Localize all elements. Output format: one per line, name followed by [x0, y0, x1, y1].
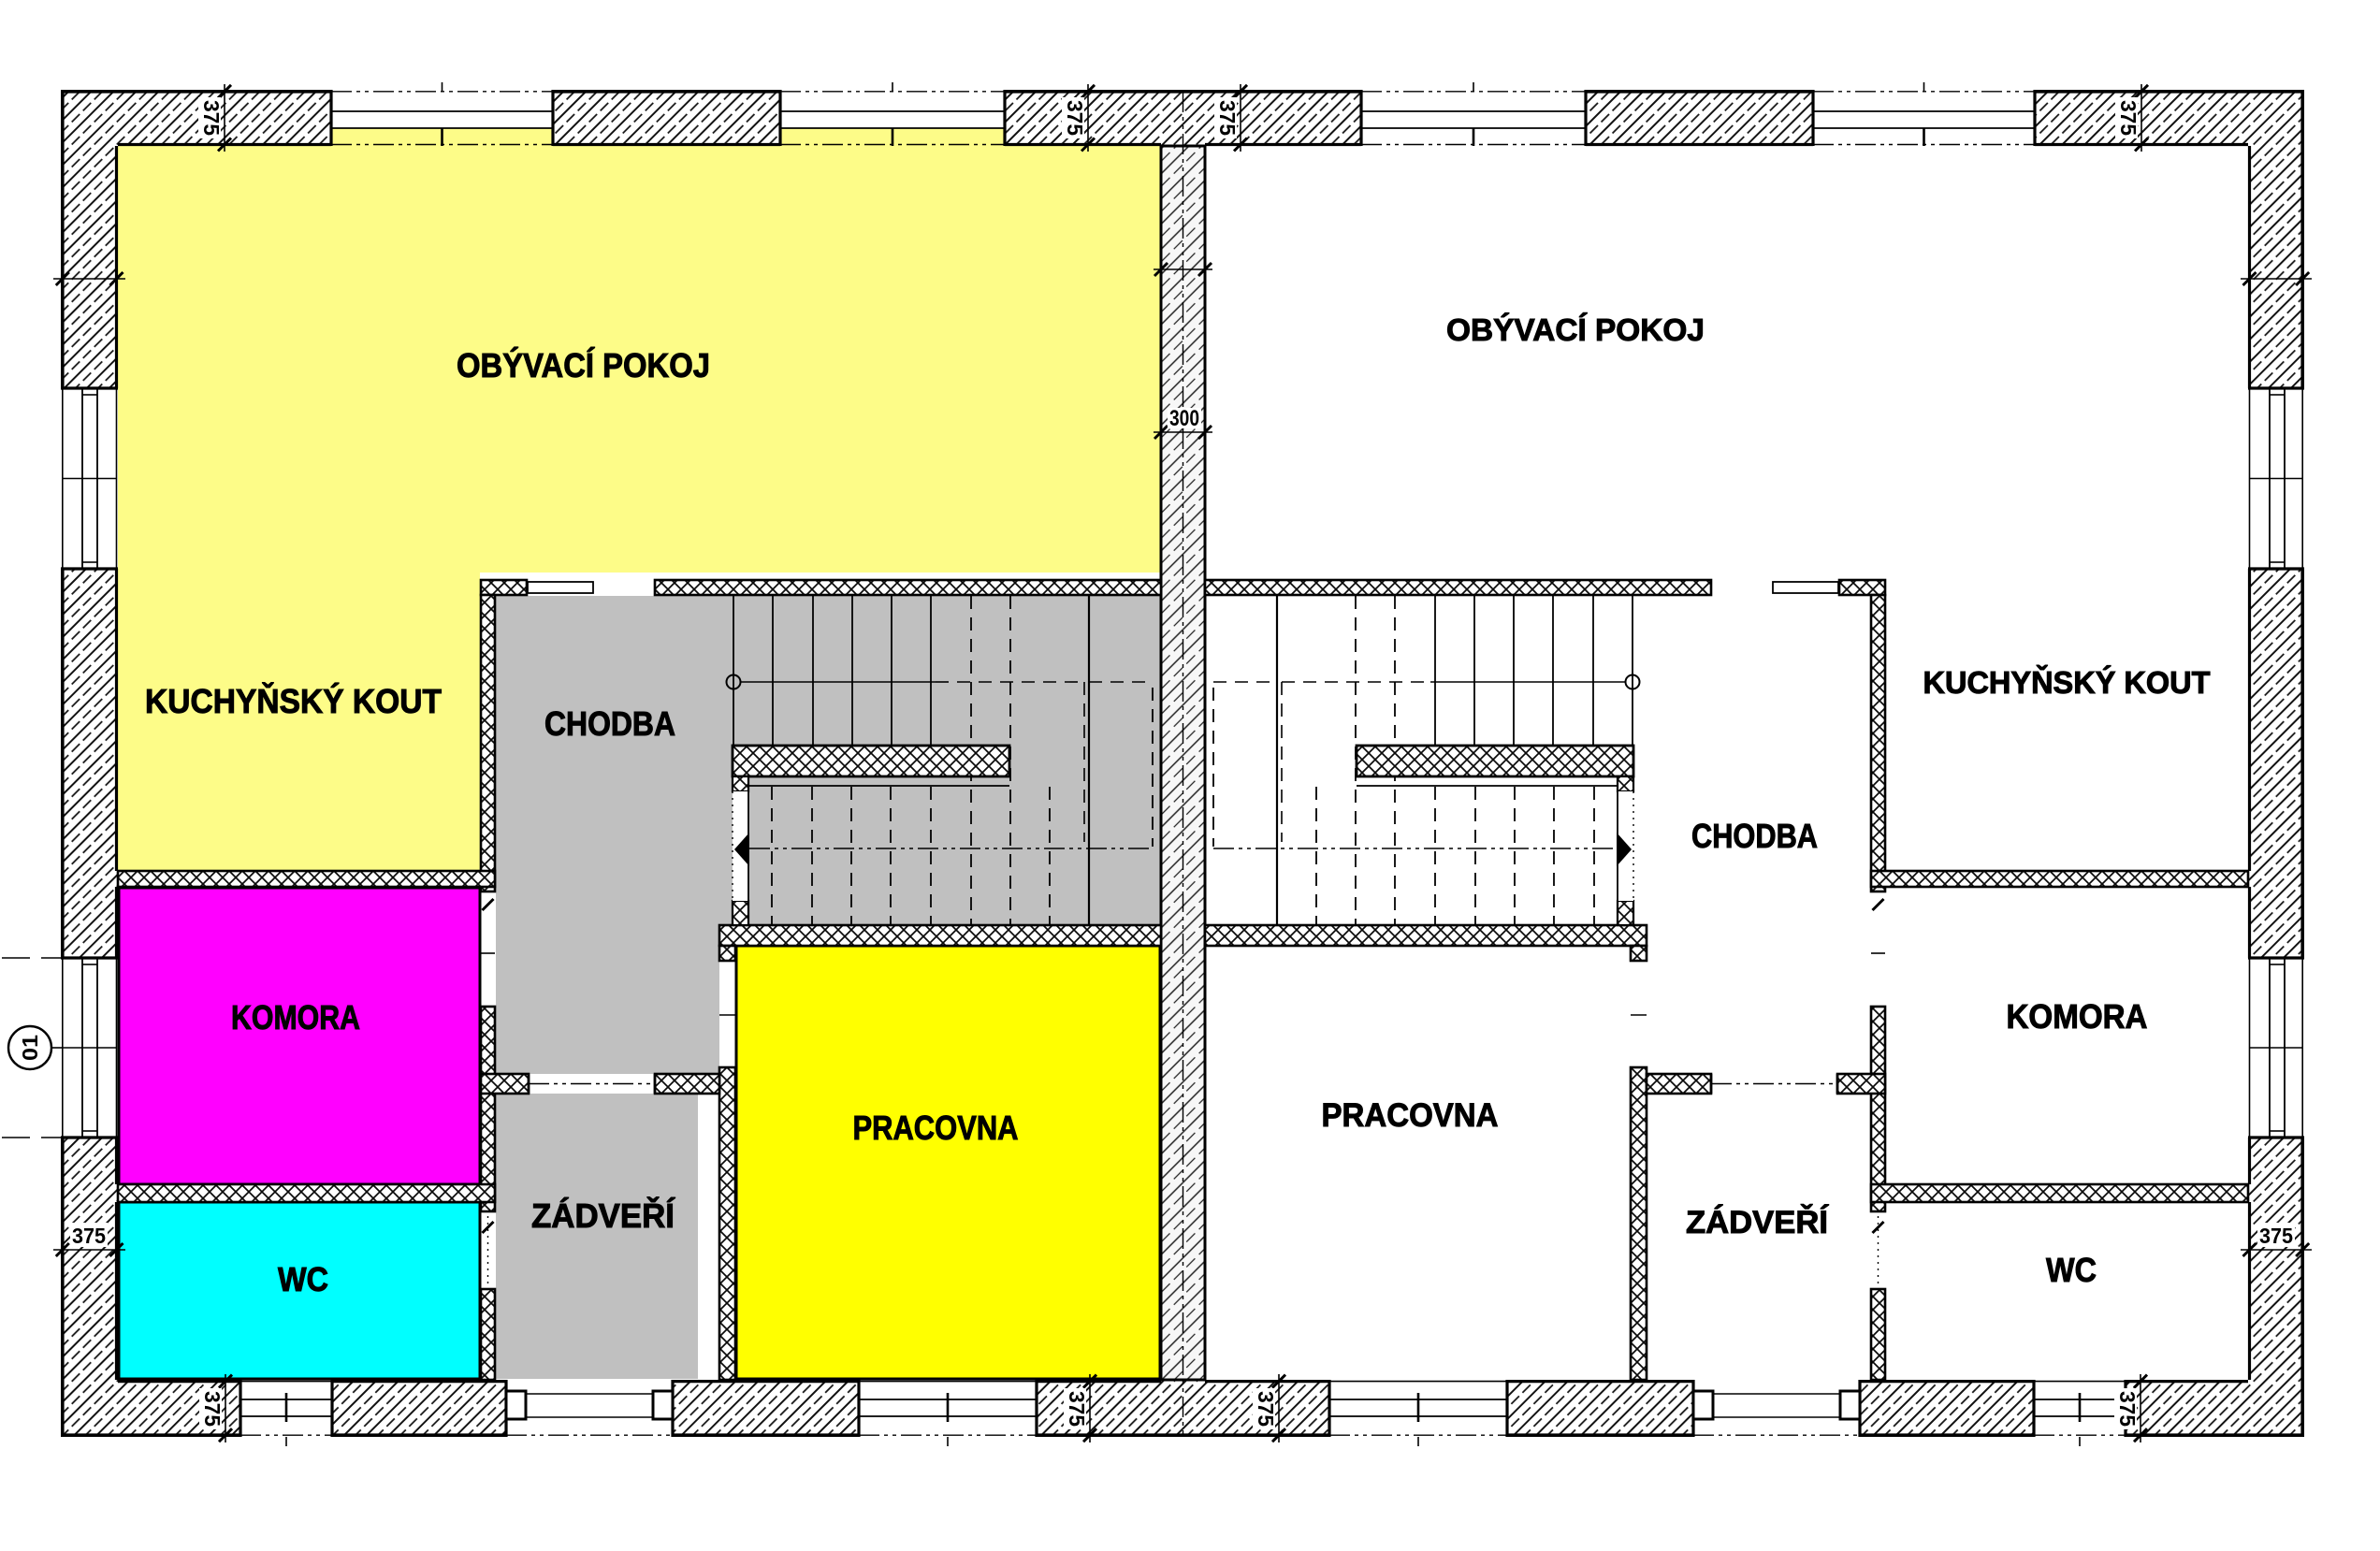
svg-text:KOMORA: KOMORA [2007, 997, 2148, 1036]
svg-text:375: 375 [1063, 100, 1087, 136]
svg-text:375: 375 [199, 100, 224, 136]
svg-text:375: 375 [1215, 100, 1240, 136]
svg-text:375: 375 [2116, 100, 2141, 136]
svg-text:375: 375 [2259, 1224, 2293, 1248]
svg-text:PRACOVNA: PRACOVNA [1322, 1097, 1499, 1134]
svg-text:WC: WC [2046, 1251, 2097, 1289]
svg-text:OBÝVACÍ POKOJ: OBÝVACÍ POKOJ [457, 346, 710, 384]
svg-text:375: 375 [1254, 1391, 1278, 1427]
svg-text:01: 01 [18, 1035, 42, 1061]
svg-text:OBÝVACÍ POKOJ: OBÝVACÍ POKOJ [1446, 312, 1705, 347]
svg-text:KUCHYŇSKÝ KOUT: KUCHYŇSKÝ KOUT [1923, 665, 2211, 700]
svg-text:KUCHYŇSKÝ KOUT: KUCHYŇSKÝ KOUT [145, 681, 442, 720]
svg-text:CHODBA: CHODBA [544, 704, 675, 743]
svg-text:ZÁDVEŘÍ: ZÁDVEŘÍ [1686, 1205, 1830, 1240]
svg-text:375: 375 [72, 1224, 106, 1248]
svg-text:375: 375 [2115, 1391, 2140, 1427]
svg-text:375: 375 [1065, 1391, 1089, 1427]
svg-text:WC: WC [278, 1260, 328, 1298]
svg-text:300: 300 [1169, 406, 1199, 431]
svg-text:375: 375 [200, 1391, 225, 1427]
svg-text:ZÁDVEŘÍ: ZÁDVEŘÍ [531, 1196, 675, 1235]
svg-text:CHODBA: CHODBA [1691, 817, 1818, 855]
svg-text:KOMORA: KOMORA [231, 998, 360, 1036]
svg-text:PRACOVNA: PRACOVNA [853, 1109, 1019, 1147]
